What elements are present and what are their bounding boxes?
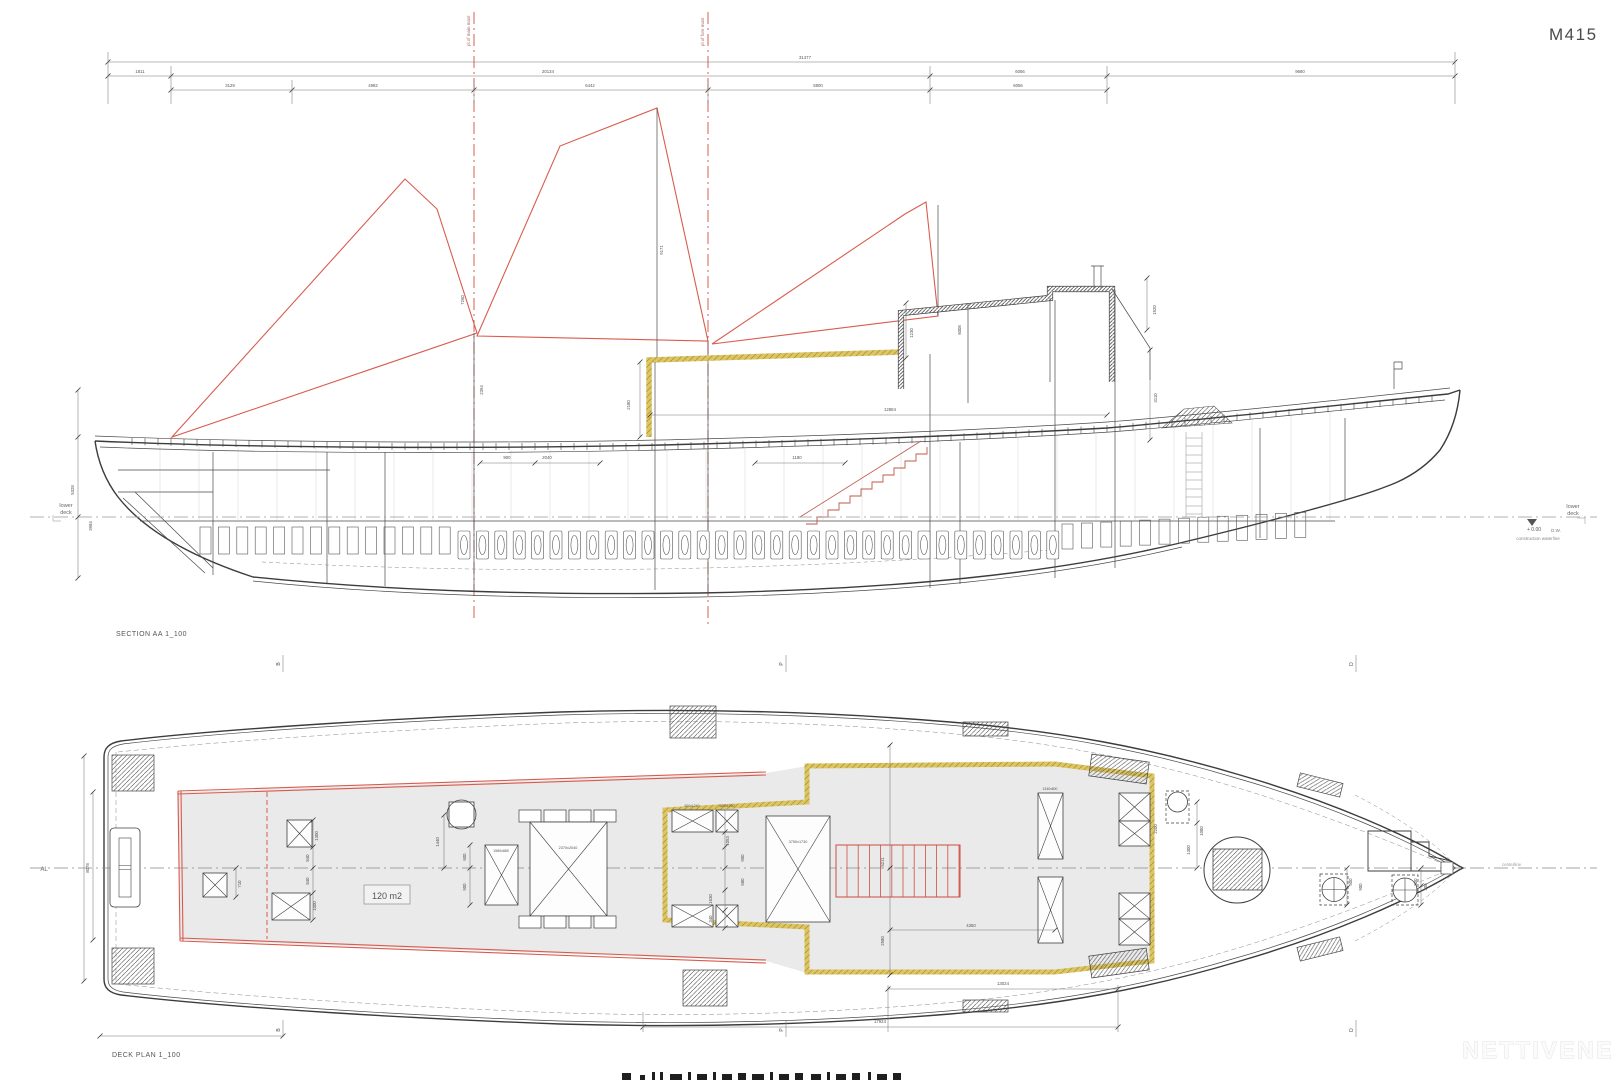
sail-aft: [172, 179, 477, 437]
dim-label: 3750x1730: [789, 840, 808, 844]
deck-item-xbox: [672, 810, 713, 832]
waterline-symbol: [1527, 519, 1537, 526]
dim-label: 9680: [1295, 69, 1305, 74]
dim-label: 900: [740, 854, 745, 862]
hatched-fitting: [112, 755, 154, 791]
bench: [594, 810, 616, 822]
dim-label: 20134: [542, 69, 555, 74]
bench: [519, 916, 541, 928]
dim-label: 6442: [585, 83, 595, 88]
deck-item-xbox: [1038, 793, 1063, 859]
deck-item-vent: [1166, 791, 1189, 823]
bench: [544, 810, 566, 822]
grid-marker-left: AL: [40, 867, 48, 873]
dim-label: 6008: [957, 325, 962, 335]
blueprint-canvas: 3147718112013460569680312949826442580060…: [0, 0, 1621, 1080]
deck-item-hatch: [670, 706, 716, 738]
hull-profile: [95, 362, 1460, 598]
deck-item-xbox: [766, 816, 830, 922]
stairs-rail: [800, 441, 921, 517]
bench: [519, 810, 541, 822]
deck-item-rect: [544, 810, 566, 822]
waterline-note: construction waterline: [1516, 536, 1560, 541]
hatched-fitting: [112, 948, 154, 984]
dim-label: 13024: [997, 981, 1010, 986]
frame-box: [366, 527, 377, 554]
frame-box: [1159, 519, 1170, 544]
bench: [544, 916, 566, 928]
dim-label: 1340x800: [1043, 787, 1058, 791]
dim-label: 600x1240: [720, 804, 735, 808]
frame-box: [1217, 516, 1228, 541]
dim-label: 1080: [1199, 826, 1204, 836]
deck-item-rect: [594, 810, 616, 822]
deck-item-hatch: [112, 755, 154, 791]
dim-label: 600: [462, 853, 467, 861]
dim-label: 1300: [1186, 845, 1191, 855]
deck-item-funnel: [1204, 837, 1270, 903]
dim-label: 2580: [880, 936, 885, 946]
dim-label: 1440: [435, 837, 440, 847]
bench: [569, 916, 591, 928]
datum-ref-label: D.W.: [1551, 528, 1561, 533]
dim-label: 600x1240: [685, 804, 700, 808]
deck-item-rect: [569, 916, 591, 928]
dim-label: 900: [503, 455, 511, 460]
deck-item-rect: [569, 810, 591, 822]
dim-label: B: [276, 662, 282, 666]
frame-box: [310, 527, 321, 554]
engine-room-ladder: [1186, 432, 1202, 517]
deck-item-hatch: [683, 970, 727, 1006]
dim-label: 840: [305, 854, 310, 862]
dim-label: 2040: [542, 455, 552, 460]
dim-label: 4982: [368, 83, 378, 88]
frame-box: [274, 527, 285, 554]
stairs-steps: [806, 447, 927, 524]
dim-label: 9171: [659, 245, 664, 255]
dim-label: 17924: [874, 1019, 887, 1024]
frame-box: [1081, 523, 1092, 548]
deck-item-xbox: [530, 822, 607, 916]
deckhouse-mast: [1091, 266, 1104, 289]
frame-box: [1178, 518, 1189, 543]
dim-label: 900: [462, 883, 467, 891]
dim-label: P: [779, 1028, 785, 1032]
deck-item-rect: [1441, 862, 1453, 874]
frame-box: [1256, 514, 1267, 539]
deck-item-xbox: [672, 905, 713, 927]
frame-box: [1295, 512, 1306, 537]
bow-flagstaff: [1394, 362, 1402, 389]
deck-item-rect: [519, 810, 541, 822]
mast-label-aft: pl.of main mast: [466, 15, 471, 46]
lower-deck-left-2: deck: [60, 510, 72, 516]
lower-deck-right-2: deck: [1567, 511, 1579, 517]
dim-label: 6056: [1013, 83, 1023, 88]
deck-item-rect: [594, 916, 616, 928]
dim-label: 5328: [70, 485, 75, 495]
dim-label: 580: [740, 878, 745, 886]
stern-profile: [95, 441, 253, 577]
deck-item-rect: [519, 916, 541, 928]
deckhouse-band-hatch: [901, 289, 1112, 389]
deck-item-hatch: [1297, 773, 1343, 797]
dim-label: 2200: [1153, 824, 1158, 834]
companionway-stairs: [800, 441, 927, 524]
deck-item-xbox: [287, 820, 312, 847]
section-view: [30, 12, 1597, 628]
bilge-line: [262, 550, 1050, 570]
deck-fitting-hatch: [1162, 406, 1232, 428]
dim-label: 3984: [88, 521, 93, 531]
deck-plan-title: DECK PLAN 1_100: [112, 1052, 181, 1059]
deck-item-circle_sq: [447, 800, 476, 829]
dim-label: 5211: [880, 857, 885, 867]
dim-label: 1811: [135, 69, 145, 74]
frame-box: [384, 527, 395, 554]
dim-label: 7260: [460, 295, 465, 305]
hatched-fitting: [963, 722, 1008, 736]
datum-label: + 0.00: [1527, 527, 1541, 533]
dim-label: 12884: [884, 407, 897, 412]
deck-item-xbox: [1119, 793, 1150, 821]
dim-label: 800: [1413, 878, 1418, 886]
frame-box: [292, 527, 303, 554]
hatched-fitting: [683, 970, 727, 1006]
cropped-caption-fragment: [622, 1072, 901, 1080]
deck-item-xbox: [1119, 893, 1150, 919]
frame-box: [421, 527, 432, 554]
sail-plan: [172, 108, 938, 437]
deck-item-tiller: [110, 828, 140, 907]
dim-label: 1000: [312, 901, 317, 911]
frame-box: [439, 527, 450, 554]
frame-ticks: [132, 395, 1432, 450]
dim-label: 5800: [813, 83, 823, 88]
deck-item-xbox: [272, 893, 310, 920]
dim-label: 2370x2040: [559, 846, 578, 850]
dim-label: 1580x880: [493, 849, 509, 853]
dim-label: D: [1349, 662, 1355, 666]
funnel-casing: [1213, 849, 1262, 890]
dim-label: 1520: [1152, 305, 1157, 315]
dim-label: 8078: [85, 863, 90, 873]
deck-item-capstan: [1320, 874, 1348, 905]
rudder-lines: [123, 492, 213, 573]
dim-label: 900: [1358, 883, 1363, 891]
tiller-outer: [110, 828, 140, 907]
dim-label: 1230: [909, 328, 914, 338]
lower-deck-right-1: lower: [1566, 504, 1579, 510]
deck-item-xbox: [1119, 821, 1150, 846]
frame-box: [1062, 524, 1073, 549]
deck-item-xbox: [1119, 919, 1150, 945]
frame-box: [218, 527, 229, 554]
deck-item-xbox: [203, 873, 227, 897]
deck-plan: [30, 706, 1597, 1026]
dim-label: 1630: [708, 894, 713, 904]
dim-label: 1180: [792, 455, 802, 460]
dim-label: P: [779, 662, 785, 666]
vent-circle: [1168, 792, 1188, 812]
dim-label: 840: [305, 877, 310, 885]
frame-box: [1120, 521, 1131, 546]
watermark: NETTIVENE: [1462, 1037, 1614, 1063]
dim-label: 2180: [626, 400, 631, 410]
dim-label: 6056: [1015, 69, 1025, 74]
bench: [569, 810, 591, 822]
dim-label: 3129: [225, 83, 235, 88]
dim-label: 31477: [799, 55, 812, 60]
dim-label: 1300: [314, 831, 319, 841]
frame-box: [1140, 520, 1151, 545]
bench: [1441, 862, 1453, 874]
frame-box: [200, 527, 211, 554]
dim-label: 340: [708, 915, 713, 923]
dim-label: 4350: [966, 923, 976, 928]
dim-label: 1053: [725, 836, 730, 846]
blueprint-page: 3147718112013460569680312949826442580060…: [0, 0, 1621, 1080]
lower-deck-left-1: lower: [59, 503, 72, 509]
deck-item-xbox: [1038, 877, 1063, 943]
windlass-body: [1368, 831, 1451, 871]
frame-box: [347, 527, 358, 554]
deck-item-rect: [544, 916, 566, 928]
deck-item-hatch: [963, 1000, 1008, 1012]
deck-area-label: 120 m2: [372, 891, 402, 901]
dim-label: 710: [237, 880, 242, 888]
dim-label: 300: [1423, 883, 1428, 891]
sail-main: [477, 108, 708, 341]
frame-box: [255, 527, 266, 554]
drawing-number: M415: [1549, 25, 1598, 44]
bench: [594, 916, 616, 928]
dim-label: 500: [1348, 878, 1353, 886]
deck-line: [100, 400, 1445, 453]
lower-deck-line: [118, 470, 1335, 521]
section-title: SECTION AA 1_100: [116, 631, 187, 638]
deck-item-hatch: [112, 948, 154, 984]
frame-box: [1101, 522, 1112, 547]
dim-label: 2394: [479, 385, 484, 395]
lower-deck-marks: [53, 515, 1585, 524]
deck-item-hatch: [963, 722, 1008, 736]
highlight-deck-edge-section: [649, 352, 900, 437]
hatched-fitting: [670, 706, 716, 738]
frame-box: [329, 527, 340, 554]
centerline-label: centerline: [1502, 862, 1522, 867]
deck-item-xbox: [716, 810, 738, 832]
frame-box: [237, 527, 248, 554]
dim-label: D: [1349, 1028, 1355, 1032]
dim-label: B: [276, 1028, 282, 1032]
mast-stubs: [474, 108, 938, 443]
binnacle-base: [449, 802, 474, 827]
frame-box: [402, 527, 413, 554]
deck-item-xbox: [485, 845, 518, 905]
hatched-fitting: [963, 1000, 1008, 1012]
dim-label: 3110: [1153, 393, 1158, 403]
mast-label-fore: pl.of fore mast: [700, 17, 705, 46]
hatched-fitting: [1297, 773, 1343, 797]
